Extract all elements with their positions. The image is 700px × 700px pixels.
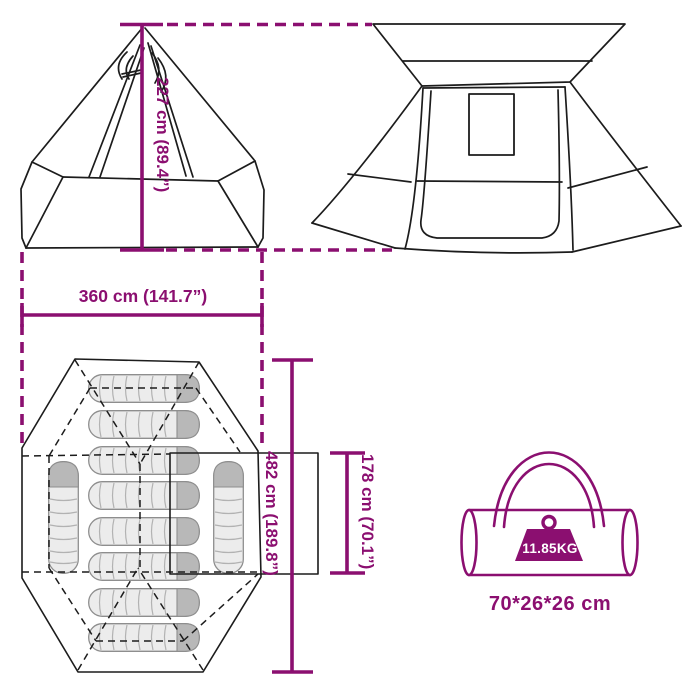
sleeping-bag <box>49 462 79 574</box>
dimension-lines <box>22 25 392 673</box>
length-dimension-label: 482 cm (189.8”) <box>261 451 281 576</box>
front-left-wing-seam <box>348 174 411 182</box>
front-left-wing-bottom <box>312 223 395 248</box>
side-left-silhouette <box>21 27 143 248</box>
tent-dimension-diagram: 360 cm (141.7”) 227 cm (89.4”) 482 cm (1… <box>0 0 700 700</box>
side-door-edge <box>89 45 140 177</box>
side-door-edge <box>100 48 144 177</box>
front-body-bottom <box>395 248 572 253</box>
sleeping-bag <box>89 589 200 617</box>
front-body-mid-seam <box>417 181 562 182</box>
front-body-top <box>423 87 565 88</box>
front-right-wing-seam <box>568 167 647 188</box>
front-right-wing-bottom <box>572 226 681 252</box>
front-window <box>469 94 514 155</box>
sleeping-bag <box>89 518 200 546</box>
bag-size-label: 70*26*26 cm <box>489 593 611 616</box>
front-roof <box>373 24 625 86</box>
sleeping-bag <box>89 411 200 439</box>
sleeping-bag <box>89 447 200 475</box>
sleeping-bag <box>89 482 200 510</box>
side-left-shoulder-seam <box>32 162 63 177</box>
side-right-shoulder-seam <box>218 161 255 181</box>
carry-bag-end-right <box>623 510 638 575</box>
carry-bag-end-left <box>462 510 477 575</box>
side-left-wall-edge <box>26 177 63 248</box>
tent-front-view <box>312 24 681 253</box>
carry-bag <box>462 453 638 576</box>
front-body-right-edge <box>565 87 573 250</box>
side-right-wall-edge <box>218 181 258 247</box>
front-left-wing-edge <box>312 86 422 223</box>
front-door-outline <box>421 90 560 238</box>
front-right-wing-edge <box>570 82 681 226</box>
bag-weight-label: 11.85KG <box>522 541 577 557</box>
vestibule-dimension-label: 178 cm (70.1”) <box>357 454 377 569</box>
sleeping-bag <box>214 462 244 574</box>
height-dimension-label: 227 cm (89.4”) <box>152 77 172 192</box>
width-dimension-label: 360 cm (141.7”) <box>79 286 207 306</box>
sleeping-bags <box>49 375 244 652</box>
